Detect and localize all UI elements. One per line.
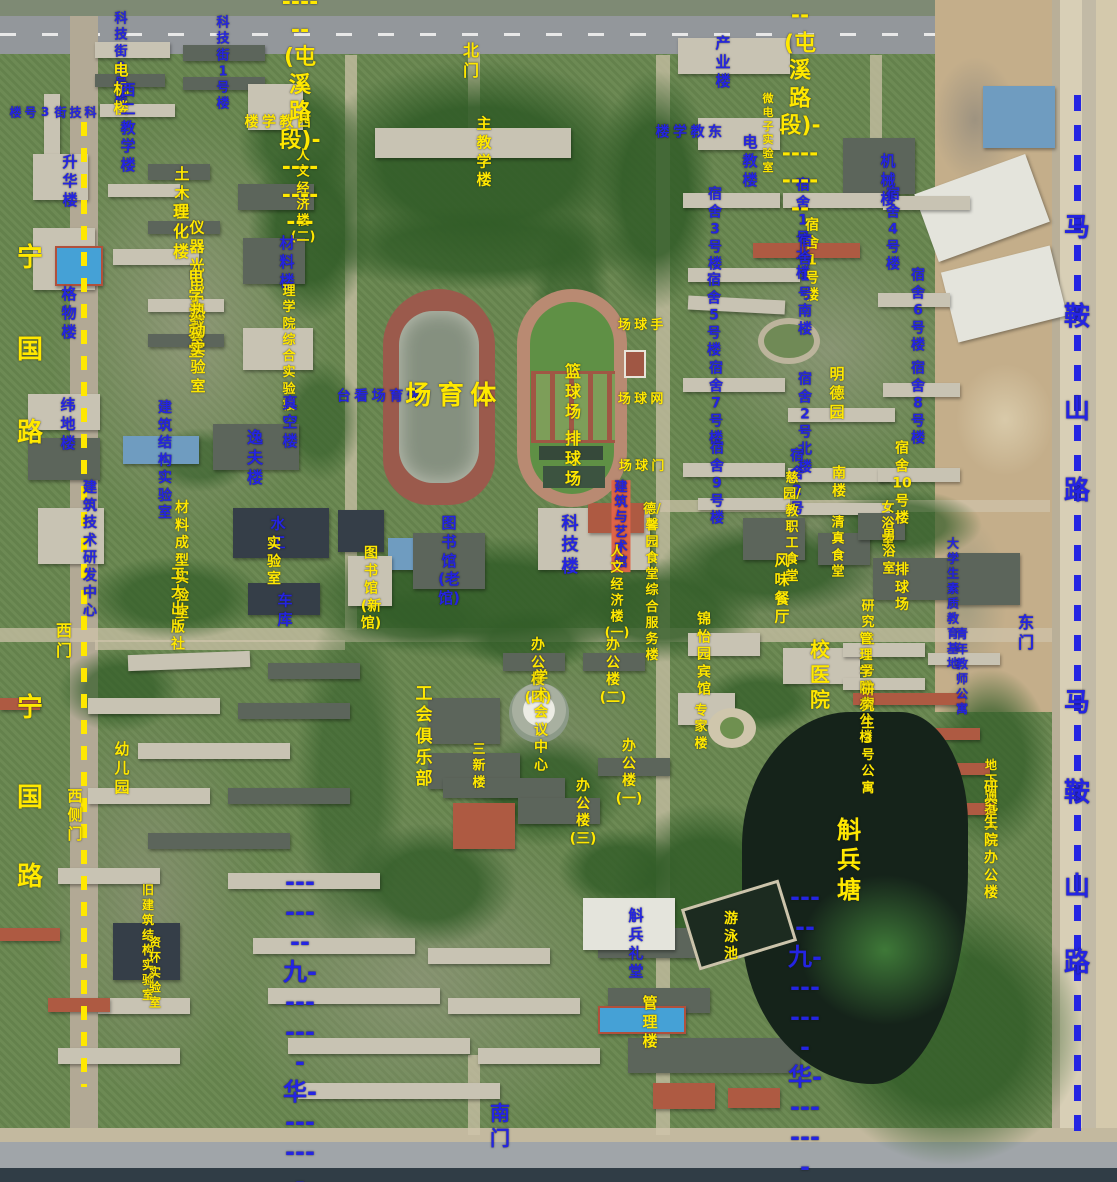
- dorm-5: 宿舍 5号楼: [707, 272, 721, 360]
- building-shape: [33, 154, 88, 200]
- road-label-ningguo-char-3: 宁: [17, 692, 43, 725]
- graduate-school-office: 研究生院 办公楼: [984, 780, 998, 903]
- building-shape: [88, 788, 210, 804]
- building-shape: [58, 868, 160, 884]
- building-shape: [58, 1048, 180, 1064]
- road-label-maanshan-char-5: 鞍: [1064, 777, 1090, 810]
- academic-conference-center: 学术会议 中心: [534, 670, 548, 775]
- building-shape: [268, 663, 360, 679]
- dorm-4: 宿舍4号楼: [886, 186, 900, 274]
- renwen-jingji-1: 人文经济楼(一): [605, 544, 630, 642]
- building-shape: [298, 1083, 500, 1099]
- road-label-maanshan-char-0: 马: [1064, 212, 1090, 245]
- building-shape: [148, 299, 224, 312]
- building-shape: [95, 42, 170, 58]
- building-shape: [678, 38, 790, 74]
- road-label-south-first-ring-1: ----------南一环--------(屯溪路段)-----------: [779, 0, 820, 223]
- union-club: 工会 俱乐部: [416, 684, 433, 790]
- fengwei-restaurant: 风味 餐厅: [774, 552, 789, 627]
- road-label-ningguo-char-4: 国: [17, 782, 43, 815]
- handball-court: 手球场: [614, 318, 663, 333]
- building-shape: [728, 1088, 780, 1108]
- volleyball-courts: 排球场: [565, 429, 581, 489]
- xier-teaching-building: 西二教学楼: [120, 81, 135, 175]
- sanxin-building: 三新楼: [472, 743, 485, 792]
- building-shape: [48, 998, 110, 1012]
- building-shape: [253, 938, 415, 954]
- building-shape: [683, 378, 785, 392]
- yifu-building: 逸夫楼: [247, 428, 263, 488]
- campus-hospital: 校医院: [810, 638, 830, 713]
- men-bathhouse: 男浴室: [882, 529, 895, 578]
- building-shape: [688, 268, 800, 282]
- road-label-south-first-ring-0: ------------南一环--------(屯溪路段)-----------…: [279, 0, 320, 236]
- road-label-jiuhuashan-0: --------九--------华--------山--------路----…: [283, 867, 317, 1182]
- zihuan-lab: 资环实验室: [149, 936, 161, 1011]
- zhenkong-building: 真空楼: [282, 394, 297, 450]
- volleyball-court-east: 排球场: [895, 562, 909, 615]
- road-label-maanshan-char-7: 路: [1064, 947, 1090, 980]
- building-shape: [0, 928, 60, 941]
- keji-street-1: 科技街1号楼: [216, 15, 229, 113]
- hubing-hall: 斛兵 礼堂: [628, 907, 643, 982]
- road-label-maanshan-char-2: 山: [1064, 394, 1090, 427]
- building-shape: [983, 86, 1055, 148]
- building-shape: [108, 184, 180, 197]
- redong-lab: 热动实验室: [190, 302, 205, 396]
- office-3: 办公楼(三): [570, 778, 597, 848]
- microelectronics-lab: 微电子实验室: [763, 92, 774, 175]
- office-1: 办公楼(一): [616, 738, 643, 808]
- gateball-court: 门球场: [615, 459, 664, 474]
- building-shape: [843, 643, 925, 657]
- keji-building: 科技楼: [562, 514, 579, 578]
- grad-apartment-3: 研究生3号公寓: [861, 683, 874, 797]
- dong-teaching-building: 东教学楼: [652, 124, 722, 140]
- lihua-building: 理化楼: [173, 202, 189, 262]
- jianzhu-jiegou-lab: 建筑结构 实验室: [158, 400, 172, 523]
- management-building: 管理楼: [642, 994, 657, 1050]
- building-shape: [88, 698, 220, 714]
- building-shape: [653, 1083, 715, 1109]
- tennis-court: 网球场: [614, 392, 663, 407]
- building-shape: [55, 246, 103, 286]
- halal-canteen: 清真食堂: [831, 516, 844, 581]
- road-label-jiuhuashan-1: -----九--------华--------山--------路-------…: [788, 882, 822, 1182]
- dorm-2-south-suffix: 南楼: [832, 466, 846, 501]
- shenghua-building: 升华楼: [62, 153, 77, 209]
- expert-building: 专家楼: [694, 704, 707, 753]
- shuigong-lab: 实验室: [267, 536, 281, 589]
- cailiao-building: 材料楼: [279, 234, 294, 290]
- east-boundary-dashed-line: [1074, 95, 1081, 1145]
- building-shape: [228, 788, 350, 804]
- pond-algae-patch: [800, 875, 970, 1025]
- dorm-7: 宿舍 7号楼: [709, 360, 723, 448]
- dorm-8: 宿舍 8号楼: [911, 360, 925, 448]
- jianzhu-jishu-center: 建筑技术 研发中心: [83, 480, 97, 620]
- basketball-courts: 篮球场: [565, 362, 581, 422]
- building-shape: [375, 128, 571, 158]
- building-shape: [100, 104, 175, 117]
- road-label-ningguo-char-0: 宁: [17, 242, 43, 275]
- building-shape: [428, 948, 550, 964]
- kindergarten: 幼儿园: [114, 740, 129, 796]
- tennis-court-shape: [624, 350, 646, 378]
- west-gate: 西门: [56, 621, 72, 661]
- building-shape: [843, 138, 915, 194]
- east-gate: 东门: [1018, 613, 1034, 653]
- stadium: 体育场: [399, 381, 497, 417]
- garage: 车库: [277, 591, 292, 629]
- dianjiao-building: 电教楼: [742, 133, 757, 189]
- building-shape: [453, 803, 515, 849]
- swimming-pool: 游泳池: [724, 911, 738, 964]
- building-shape: [238, 703, 350, 719]
- gongda-press: 工大出版社: [171, 566, 185, 654]
- road-label-ningguo-char-1: 国: [17, 334, 43, 367]
- building-shape: [428, 698, 500, 744]
- library-new: 图书馆 (新馆): [361, 545, 381, 633]
- south-buildings-strip: [0, 1168, 1117, 1182]
- building-shape: [148, 833, 290, 849]
- dorm-1-south: 宿舍1号南楼: [798, 234, 812, 339]
- roundabout-inner-shape: [720, 717, 744, 739]
- campus-satellite-map: 科技街2号楼科技街1号楼科技街3号楼电机楼西二教学楼西教学楼北门主教学楼产业楼东…: [0, 0, 1117, 1182]
- dorm-9: 宿舍9号楼: [710, 440, 724, 528]
- road-label-ningguo-char-5: 路: [17, 861, 43, 894]
- building-shape: [138, 743, 290, 759]
- dorm-3: 宿舍3号楼: [708, 186, 722, 274]
- office-2: 办公楼(二): [600, 637, 627, 707]
- west-side-gate: 西侧门: [67, 787, 82, 843]
- south-gate: 南门: [490, 1101, 510, 1151]
- dexinyuan-canteen-service: 德/馨园食堂 综合服务楼: [643, 502, 661, 665]
- dorm-6: 宿舍 6号楼: [911, 267, 925, 355]
- building-shape: [478, 1048, 600, 1064]
- road-label-maanshan-char-3: 路: [1064, 475, 1090, 508]
- building-shape: [243, 328, 313, 370]
- keji-street-3: 科技街3号楼: [7, 105, 97, 121]
- building-shape: [448, 998, 580, 1014]
- building-shape: [878, 468, 960, 482]
- dorm-10: 宿舍10号楼: [892, 440, 911, 528]
- building-shape: [683, 193, 780, 208]
- library-old: 图书馆 (老馆): [438, 514, 460, 608]
- jinyiyuan-hotel: 锦怡园宾馆: [697, 611, 711, 699]
- main-teaching-building: 主教学楼: [476, 115, 491, 190]
- hubingtang-pond: 斛兵塘: [837, 815, 861, 905]
- building-shape: [843, 678, 925, 690]
- building-shape: [148, 334, 224, 347]
- building-shape: [683, 463, 785, 477]
- weidi-building: 纬地楼: [60, 396, 75, 452]
- young-teacher-apartment: 青年教师公寓: [956, 627, 968, 717]
- gewu-building: 格物楼: [61, 285, 76, 341]
- north-gate: 北门: [463, 41, 479, 81]
- building-shape: [443, 778, 565, 798]
- chanye-building: 产业楼: [715, 34, 730, 90]
- road-label-ningguo-char-2: 路: [17, 417, 43, 450]
- road-label-maanshan-char-1: 鞍: [1064, 301, 1090, 334]
- road-label-maanshan-char-6: 山: [1064, 871, 1090, 904]
- mingdeyuan: 明德园: [829, 365, 844, 421]
- road-label-maanshan-char-4: 马: [1064, 687, 1090, 720]
